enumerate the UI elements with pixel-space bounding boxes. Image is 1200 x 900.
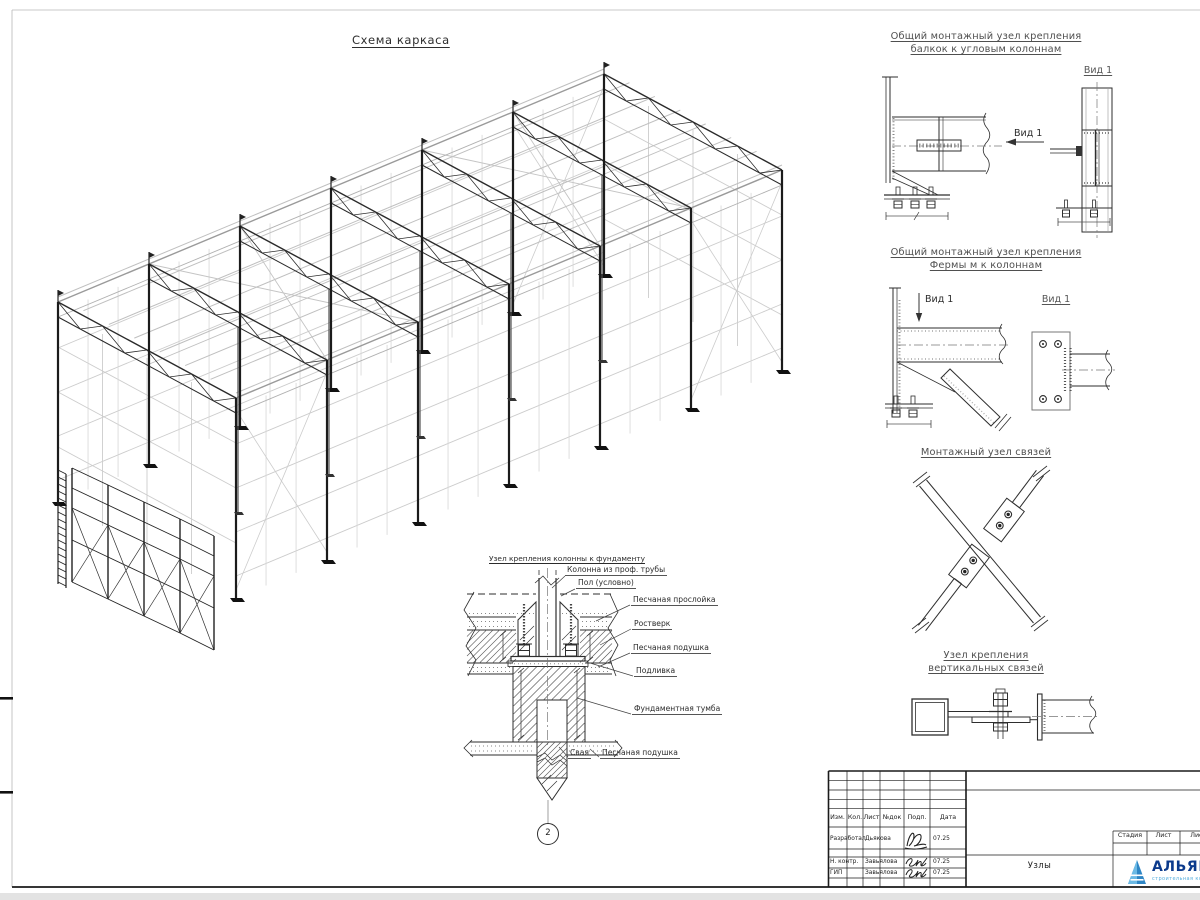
bolt-stack <box>989 689 1012 739</box>
label-pile: Свая <box>568 749 591 759</box>
detail4-title-line1: Узел крепления <box>876 651 1096 661</box>
tb-date-1: 07.25 <box>933 836 950 842</box>
company-logo-text: АЛЬЯНС <box>1152 860 1200 875</box>
label-block: Фундаментная тумба <box>632 705 722 715</box>
detail-truss-column <box>885 288 1115 431</box>
signature-zavyalova-icon <box>906 858 927 866</box>
detail1-title-line2: балкок к угловым колоннам <box>876 45 1096 55</box>
detail1-view-arrow-label: Вид 1 <box>1014 129 1042 139</box>
signature-zavyalova-icon <box>906 869 927 877</box>
tb-header-podp: Подп. <box>904 815 930 822</box>
trim-mark-2 <box>0 791 13 794</box>
tb-sheets-label: Листов <box>1180 833 1200 840</box>
detail1-view-title: Вид 1 <box>1072 66 1124 76</box>
bolt-circle-group <box>1040 341 1062 403</box>
label-floor: Пол (условно) <box>576 579 636 589</box>
detail2-title-line1: Общий монтажный узел крепления <box>876 248 1096 258</box>
label-sand-cushion: Песчаная подушка <box>631 644 711 654</box>
foundation-detail-top <box>464 568 633 845</box>
label-grout: Подливка <box>634 667 677 677</box>
label-sand-layer: Песчаная прослойка <box>631 596 718 606</box>
detail3-title: Монтажный узел связей <box>876 448 1096 458</box>
detail-beam-corner-column <box>882 77 1112 238</box>
trim-mark-1 <box>0 697 13 700</box>
drawing-sheet: Схема каркаса Общий монтажный узел крепл… <box>0 0 1200 893</box>
tb-doc-name: Узлы <box>966 862 1113 871</box>
label-grillage: Ростверк <box>632 620 672 630</box>
detail4-title-line2: вертикальных связей <box>876 664 1096 674</box>
tb-header-izm: Изм. <box>828 815 847 822</box>
screenshot-stage: Схема каркаса Общий монтажный узел крепл… <box>0 0 1200 900</box>
bolt-group <box>892 187 937 208</box>
tb-stage-label: Стадия <box>1113 833 1147 840</box>
label-sand-cushion-2: Песчаная подушка <box>600 749 680 759</box>
tb-name-dyakova: Дьякова <box>865 836 891 842</box>
signature-dyakova-icon <box>905 833 927 849</box>
detail2-view-title: Вид 1 <box>1030 295 1082 305</box>
detail-brace-node <box>912 466 1050 633</box>
company-logo-subtext: строительная компания <box>1152 877 1200 882</box>
tb-sheet-label: Лист <box>1147 833 1180 840</box>
tb-role-gip: ГИП <box>830 870 842 876</box>
foundation-title: Узел крепления колонны к фундаменту <box>489 555 645 563</box>
tb-header-ndoc: №док <box>880 815 904 822</box>
main-title: Схема каркаса <box>352 34 450 46</box>
label-column: Колонна из проф. трубы <box>565 566 667 576</box>
tb-header-data: Дата <box>930 815 966 822</box>
tb-date-2: 07.25 <box>933 859 950 865</box>
tb-role-nkontr: Н. контр. <box>830 859 858 865</box>
detail-vertical-brace-node <box>912 689 1100 740</box>
tb-date-3: 07.25 <box>933 870 950 876</box>
detail1-title-line1: Общий монтажный узел крепления <box>876 32 1096 42</box>
tb-header-list: Лист <box>863 815 880 822</box>
tb-role-razrabotal: Разработал <box>830 836 866 842</box>
company-logo-icon <box>1128 860 1146 884</box>
tb-header-kol: Кол. <box>847 815 863 822</box>
bolt-group <box>890 396 919 417</box>
detail2-title-line2: Фермы м к колоннам <box>876 261 1096 271</box>
iso-frame-drawing <box>52 62 791 650</box>
tb-name-zavyalova-2: Завьялова <box>865 870 897 876</box>
detail-marker-2: 2 <box>541 829 555 838</box>
detail2-view-arrow-label: Вид 1 <box>925 295 953 305</box>
tb-name-zavyalova-1: Завьялова <box>865 859 897 865</box>
